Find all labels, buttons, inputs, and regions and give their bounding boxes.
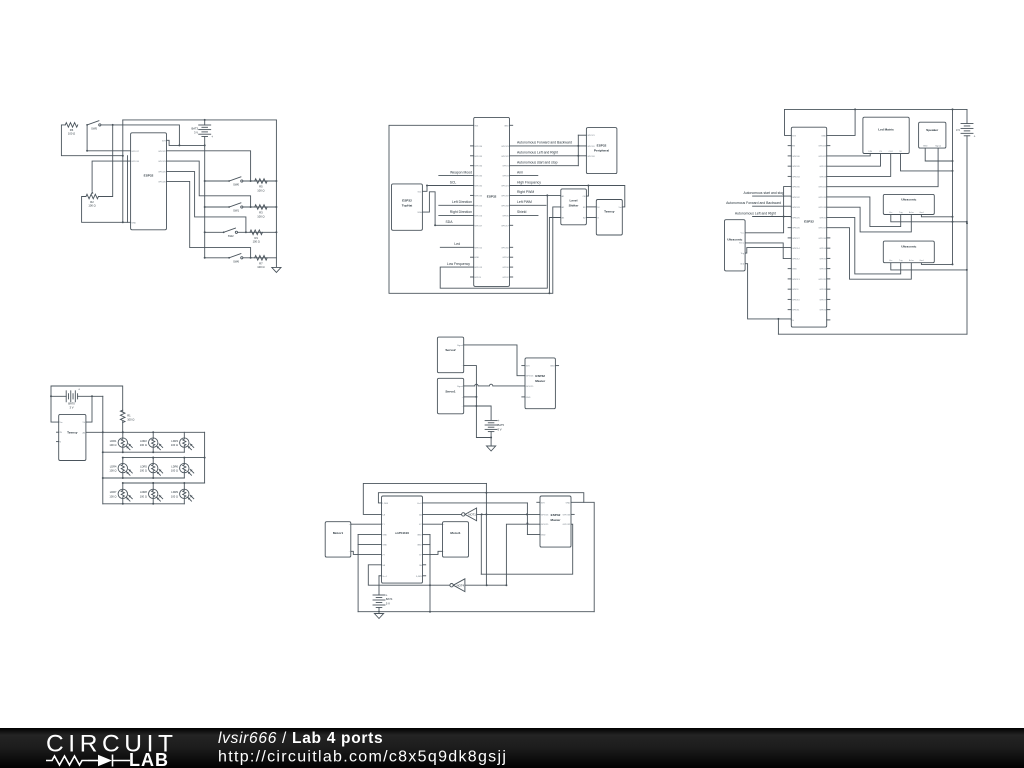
svg-text:GND: GND [382, 535, 387, 537]
svg-text:Autonomous Forward and Backwar: Autonomous Forward and Backward [726, 201, 781, 205]
svg-text:GPIO25: GPIO25 [541, 524, 549, 526]
svg-text:+: + [211, 135, 213, 139]
svg-text:GPIO39: GPIO39 [792, 166, 800, 168]
svg-text:lvsir666 / Lab 4 ports: lvsir666 / Lab 4 ports [218, 730, 383, 747]
svg-text:GND: GND [541, 535, 546, 537]
svg-text:100 Ω: 100 Ω [257, 265, 264, 269]
svg-text:GPIO35: GPIO35 [792, 187, 800, 189]
svg-text:NOT4: NOT4 [457, 583, 465, 587]
svg-text:Signal: Signal [457, 386, 463, 388]
svg-text:GPIO25: GPIO25 [158, 172, 166, 174]
svg-text:+: + [386, 594, 388, 598]
svg-text:100 Ω: 100 Ω [171, 494, 178, 498]
svg-text:Weapon Mood: Weapon Mood [450, 170, 472, 174]
svg-text:LDR6: LDR6 [171, 464, 178, 468]
svg-text:Echo: Echo [909, 212, 915, 214]
svg-text:GPIO0: GPIO0 [820, 258, 827, 260]
svg-text:ESP32: ESP32 [402, 199, 412, 203]
svg-text:LDR9: LDR9 [171, 490, 178, 494]
svg-text:SW5: SW5 [91, 127, 97, 131]
svg-text:100 Ω: 100 Ω [253, 240, 260, 244]
svg-text:GND: GND [504, 125, 509, 127]
svg-text:ESP32: ESP32 [804, 220, 814, 224]
svg-text:GPIO21: GPIO21 [501, 186, 509, 188]
svg-text:GPIO32: GPIO32 [792, 197, 800, 199]
svg-text:Motor1: Motor1 [450, 531, 461, 535]
svg-text:GPIO27: GPIO27 [475, 225, 483, 227]
svg-text:Autonomous start and stop: Autonomous start and stop [743, 191, 784, 195]
svg-text:Servo2: Servo2 [445, 348, 456, 352]
svg-text:100 Ω: 100 Ω [68, 131, 75, 135]
svg-text:GND: GND [923, 145, 928, 147]
svg-text:GPIO1: GPIO1 [502, 166, 509, 168]
svg-text:SW0: SW0 [233, 183, 239, 187]
svg-text:DIN: DIN [868, 151, 872, 153]
svg-text:100 Ω: 100 Ω [140, 469, 147, 473]
svg-text:Left PWM: Left PWM [517, 200, 532, 204]
svg-text:Vcc: Vcc [889, 260, 892, 262]
svg-text:BAT4: BAT4 [386, 597, 393, 601]
svg-text:GND: GND [417, 545, 422, 547]
svg-text:GPIO17: GPIO17 [131, 151, 139, 153]
svg-text:SW1: SW1 [233, 209, 239, 213]
svg-text:GND: GND [526, 397, 531, 399]
svg-text:GPIO10: GPIO10 [792, 299, 800, 301]
svg-text:GPIO18: GPIO18 [818, 207, 826, 209]
svg-text:High Frequency: High Frequency [517, 180, 541, 184]
svg-text:GPIO26: GPIO26 [158, 181, 166, 183]
svg-text:GPIO16: GPIO16 [501, 247, 509, 249]
svg-text:GPIO7: GPIO7 [820, 299, 827, 301]
svg-text:EN: EN [792, 146, 795, 148]
svg-text:GPIO22: GPIO22 [501, 156, 509, 158]
svg-text:GPIO15: GPIO15 [818, 279, 826, 281]
svg-text:GPIO4: GPIO4 [820, 248, 827, 250]
svg-text:R7: R7 [259, 262, 263, 266]
svg-text:GND: GND [792, 269, 797, 271]
svg-text:Led Matrix: Led Matrix [878, 127, 894, 131]
svg-text:GPIO6: GPIO6 [820, 310, 827, 312]
svg-text:GPIO4: GPIO4 [502, 257, 509, 259]
svg-text:Low Frequency: Low Frequency [447, 262, 470, 266]
svg-text:Signal: Signal [935, 145, 941, 147]
svg-text:GPIO5: GPIO5 [502, 215, 509, 217]
svg-text:GPIO25: GPIO25 [526, 386, 534, 388]
svg-text:GND: GND [417, 535, 422, 537]
svg-text:SCL: SCL [450, 180, 457, 184]
svg-text:Arm: Arm [517, 170, 523, 174]
svg-text:GPIO16: GPIO16 [818, 238, 826, 240]
svg-text:GPIO36: GPIO36 [792, 156, 800, 158]
svg-text:GPIO12: GPIO12 [475, 247, 483, 249]
svg-text:LDR4: LDR4 [110, 464, 117, 468]
svg-text:Autonomous Forward and Backwar: Autonomous Forward and Backward [517, 141, 572, 145]
svg-text:Right PWM: Right PWM [517, 190, 534, 194]
svg-text:GPIO34: GPIO34 [475, 166, 483, 168]
svg-text:GPIO34: GPIO34 [792, 176, 800, 178]
svg-text:GPIO12: GPIO12 [792, 258, 800, 260]
svg-text:GPIO33: GPIO33 [563, 514, 571, 516]
svg-text:GPIO26: GPIO26 [475, 215, 483, 217]
svg-text:GPIO18: GPIO18 [587, 156, 595, 158]
svg-text:BAT5: BAT5 [498, 423, 505, 427]
svg-text:3 V: 3 V [956, 128, 960, 132]
svg-text:GPIO32: GPIO32 [475, 186, 483, 188]
svg-text:Master: Master [551, 518, 562, 522]
svg-text:100 Ω: 100 Ω [140, 443, 147, 447]
svg-text:Right Direction: Right Direction [450, 210, 472, 214]
svg-text:GPIO19: GPIO19 [501, 195, 509, 197]
svg-text:GPIO14: GPIO14 [792, 248, 800, 250]
svg-text:100 Ω: 100 Ω [109, 469, 116, 473]
svg-text:100 Ω: 100 Ω [109, 494, 116, 498]
svg-text:GND: GND [821, 135, 826, 137]
svg-text:GPIO23: GPIO23 [158, 161, 166, 163]
svg-text:GPIO26: GPIO26 [792, 228, 800, 230]
svg-text:R2: R2 [90, 200, 94, 204]
svg-text:GPIO33: GPIO33 [475, 195, 483, 197]
svg-text:100 Ω: 100 Ω [171, 443, 178, 447]
svg-text:Shifter: Shifter [569, 204, 580, 208]
svg-text:GPIO2: GPIO2 [502, 277, 509, 279]
svg-text:Autonomous start and stop: Autonomous start and stop [517, 161, 558, 165]
svg-text:Teensy: Teensy [604, 210, 615, 214]
svg-text:LDR2: LDR2 [140, 439, 147, 443]
svg-text:5 V: 5 V [386, 602, 390, 606]
svg-text:3 V: 3 V [69, 405, 73, 409]
svg-text:GPIO21: GPIO21 [818, 187, 826, 189]
svg-text:GPIO27: GPIO27 [792, 238, 800, 240]
svg-text:CLK: CLK [889, 151, 894, 153]
svg-text:TopHat: TopHat [402, 204, 412, 208]
svg-text:3 V: 3 V [194, 130, 198, 134]
svg-text:Led: Led [454, 242, 460, 246]
svg-text:3 V: 3 V [498, 427, 502, 431]
svg-text:Master: Master [535, 379, 546, 383]
svg-text:GPIO2: GPIO2 [820, 269, 827, 271]
svg-text:GPIO9: GPIO9 [792, 289, 799, 291]
svg-text:GPIO0: GPIO0 [502, 267, 509, 269]
svg-text:GPIO11: GPIO11 [792, 310, 800, 312]
svg-text:http://circuitlab.com/c8x5q9dk: http://circuitlab.com/c8x5q9dk8gsjj [218, 749, 507, 766]
svg-text:GPIO25: GPIO25 [792, 217, 800, 219]
svg-text:SDA: SDA [446, 220, 454, 224]
svg-text:LDR3: LDR3 [171, 439, 178, 443]
svg-text:GPIO33: GPIO33 [792, 207, 800, 209]
svg-text:ESP32: ESP32 [535, 374, 545, 378]
svg-text:GPIO19: GPIO19 [587, 146, 595, 148]
svg-text:NOT1: NOT1 [468, 513, 476, 517]
svg-text:LDR8: LDR8 [140, 490, 147, 494]
svg-text:+: + [78, 387, 80, 391]
svg-text:Echo: Echo [909, 260, 915, 262]
svg-text:100 Ω: 100 Ω [171, 469, 178, 473]
svg-text:ESP32: ESP32 [144, 174, 154, 178]
svg-text:Ultrasonic: Ultrasonic [901, 197, 916, 201]
svg-text:GPIO1: GPIO1 [820, 166, 827, 168]
svg-text:BAT3: BAT3 [191, 126, 198, 130]
svg-text:100 Ω: 100 Ω [257, 214, 264, 218]
svg-text:100 Ω: 100 Ω [88, 203, 95, 207]
svg-text:BAT0: BAT0 [68, 401, 75, 405]
svg-text:Level: Level [570, 199, 578, 203]
svg-text:ESP32: ESP32 [487, 195, 497, 199]
svg-text:1,2EN: 1,2EN [382, 503, 388, 505]
svg-text:LAB: LAB [129, 750, 169, 768]
svg-text:Ultrasonic: Ultrasonic [901, 245, 916, 249]
svg-text:Peripheral: Peripheral [594, 149, 609, 153]
svg-text:100 Ω: 100 Ω [140, 494, 147, 498]
svg-text:Left Direction: Left Direction [452, 200, 472, 204]
svg-text:Shield: Shield [517, 210, 527, 214]
svg-text:GPIO21: GPIO21 [587, 135, 595, 137]
svg-text:Signal: Signal [457, 345, 463, 347]
svg-text:GPIO36: GPIO36 [475, 146, 483, 148]
svg-text:GND: GND [475, 257, 480, 259]
svg-text:Autonomous Left and Right: Autonomous Left and Right [735, 211, 776, 215]
svg-text:LDR5: LDR5 [140, 464, 147, 468]
svg-text:Echo: Echo [739, 243, 745, 245]
svg-text:GPIO13: GPIO13 [475, 267, 483, 269]
svg-text:GPIO35: GPIO35 [475, 176, 483, 178]
svg-text:R5: R5 [259, 185, 263, 189]
svg-text:ESP32: ESP32 [551, 513, 561, 517]
svg-text:GPIO3: GPIO3 [502, 176, 509, 178]
svg-text:GPIO17: GPIO17 [818, 228, 826, 230]
svg-text:GPIO39: GPIO39 [475, 156, 483, 158]
svg-text:Servo1: Servo1 [445, 389, 456, 393]
svg-text:GND: GND [550, 366, 555, 368]
svg-text:GPIO8: GPIO8 [820, 289, 827, 291]
svg-text:GPIO5: GPIO5 [820, 217, 827, 219]
svg-text:Motor1: Motor1 [333, 531, 344, 535]
svg-text:SW2: SW2 [228, 234, 234, 238]
svg-text:GPIO9: GPIO9 [475, 277, 482, 279]
svg-text:R3: R3 [259, 211, 263, 215]
svg-text:3,4EN: 3,4EN [416, 576, 422, 578]
svg-text:GPIO23: GPIO23 [818, 146, 826, 148]
svg-text:GPIO26: GPIO26 [526, 376, 534, 378]
svg-text:GPIO19: GPIO19 [818, 197, 826, 199]
svg-text:GND: GND [131, 222, 136, 224]
svg-text:GPIO3: GPIO3 [820, 176, 827, 178]
svg-text:LDR7: LDR7 [110, 490, 117, 494]
svg-text:GPIO23: GPIO23 [501, 146, 509, 148]
svg-text:GND: GND [566, 502, 571, 504]
svg-text:100 Ω: 100 Ω [127, 418, 134, 422]
svg-text:ESP32: ESP32 [597, 144, 607, 148]
svg-text:R1: R1 [254, 236, 258, 240]
svg-text:GPIO13: GPIO13 [792, 279, 800, 281]
svg-text:Speaker: Speaker [926, 128, 939, 132]
svg-text:GPIO25: GPIO25 [475, 205, 483, 207]
svg-text:SW6: SW6 [233, 259, 239, 263]
svg-text:LDR1: LDR1 [110, 439, 117, 443]
svg-text:GPIO17: GPIO17 [501, 225, 509, 227]
svg-text:Vcc: Vcc [889, 212, 892, 214]
svg-text:Ultrasonic: Ultrasonic [727, 237, 742, 241]
svg-text:GPIO22: GPIO22 [818, 156, 826, 158]
svg-text:GPIO32: GPIO32 [563, 524, 571, 526]
svg-text:GPIO18: GPIO18 [501, 205, 509, 207]
svg-text:sn754410: sn754410 [395, 531, 409, 535]
svg-text:R6: R6 [70, 128, 74, 132]
svg-text:+: + [974, 134, 976, 138]
svg-text:GPIO26: GPIO26 [541, 514, 549, 516]
svg-text:SDA: SDA [417, 211, 422, 214]
svg-text:GND: GND [382, 545, 387, 547]
svg-text:GPIO16: GPIO16 [131, 161, 139, 163]
svg-text:R1: R1 [127, 414, 131, 418]
svg-text:100 Ω: 100 Ω [257, 188, 264, 192]
svg-text:Autonomous Left and Right: Autonomous Left and Right [517, 151, 558, 155]
svg-text:Vcc: Vcc [741, 233, 744, 235]
svg-text:GPIO22: GPIO22 [158, 151, 166, 153]
svg-text:+: + [498, 419, 500, 423]
svg-text:Teensy: Teensy [67, 431, 78, 435]
svg-text:100 Ω: 100 Ω [109, 443, 116, 447]
